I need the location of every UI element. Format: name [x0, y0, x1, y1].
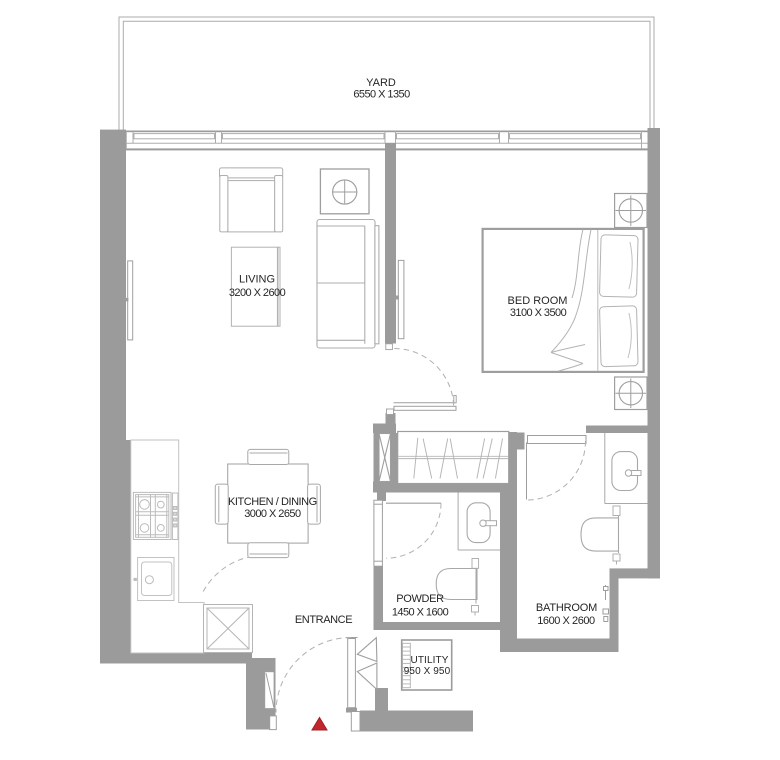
svg-text:ENTRANCE: ENTRANCE: [295, 614, 352, 626]
svg-text:BED ROOM: BED ROOM: [508, 295, 568, 307]
svg-text:YARD: YARD: [366, 77, 396, 89]
svg-text:3000 X 2650: 3000 X 2650: [244, 508, 301, 520]
svg-text:UTILITY: UTILITY: [411, 655, 449, 666]
svg-text:LIVING: LIVING: [239, 274, 275, 286]
svg-text:6550 X 1350: 6550 X 1350: [353, 89, 410, 101]
svg-text:3100 X 3500: 3100 X 3500: [510, 307, 567, 319]
svg-text:KITCHEN / DINING: KITCHEN / DINING: [228, 496, 317, 508]
svg-text:1450 X 1600: 1450 X 1600: [392, 606, 449, 618]
svg-text:950 X 950: 950 X 950: [404, 666, 451, 677]
svg-text:1600 X 2600: 1600 X 2600: [537, 615, 595, 627]
svg-text:3200 X 2600: 3200 X 2600: [229, 287, 286, 299]
svg-text:POWDER: POWDER: [396, 593, 444, 605]
svg-text:BATHROOM: BATHROOM: [536, 602, 597, 614]
